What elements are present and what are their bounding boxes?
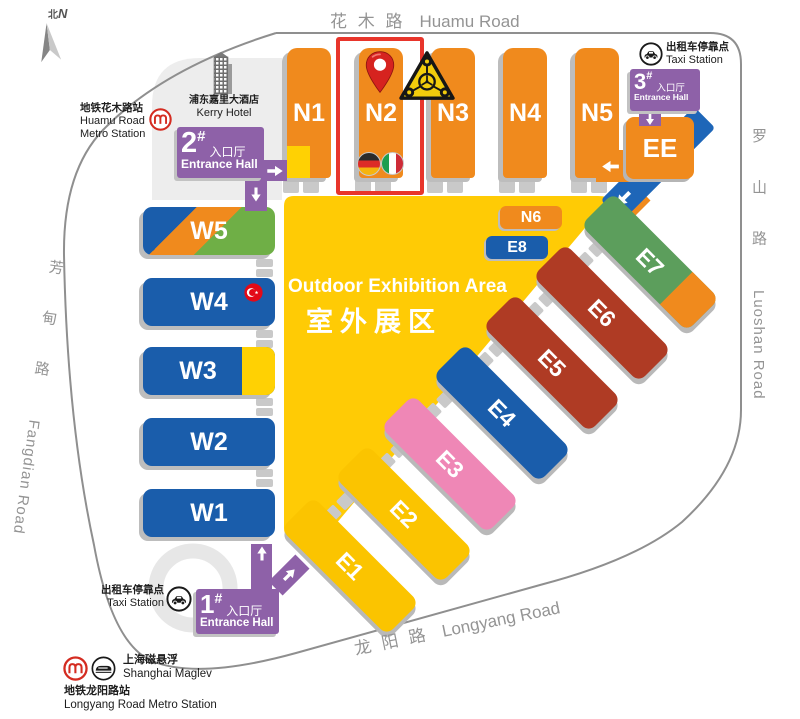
- triangle-brand-logo-icon: [398, 49, 456, 102]
- hall-w3-yellow-section: [242, 347, 275, 395]
- entrance-1-en: Entrance Hall: [200, 617, 275, 630]
- arrow-up-right-icon: [279, 565, 298, 584]
- compass-needle-icon: [31, 19, 66, 66]
- hall-w5-label: W5: [190, 217, 228, 246]
- hall-n4-label: N4: [509, 99, 541, 128]
- kerry-hotel-label: 浦东嘉里大酒店 Kerry Hotel: [176, 95, 272, 121]
- huamu-metro-en2: Metro Station: [80, 128, 145, 141]
- connector-stub: [499, 179, 515, 193]
- hall-w4-label: W4: [190, 288, 228, 317]
- entrance-2-down-stub: [245, 177, 267, 211]
- connector-stub: [256, 269, 273, 277]
- expo-map-canvas: 花 木 路 Huamu Road 北N 芳 甸 路 Fangdian Road …: [0, 0, 800, 719]
- shanghai-maglev-label: 上海磁悬浮 Shanghai Maglev: [123, 654, 212, 681]
- hall-w1: W1: [143, 489, 275, 537]
- hall-n1: N1: [287, 48, 331, 178]
- connector-stub: [256, 469, 273, 477]
- connector-stub: [256, 398, 273, 406]
- huamu-metro-zh: 地铁花木路站: [80, 102, 145, 115]
- entrance-2-en: Entrance Hall: [181, 158, 260, 171]
- entrance-1-up-stub: [251, 544, 272, 590]
- taxi-south-en: Taxi Station: [96, 597, 164, 610]
- hall-e8: E8: [486, 236, 548, 259]
- outdoor-area-title-en: Outdoor Exhibition Area: [288, 276, 507, 298]
- hotel-icon: [208, 50, 236, 96]
- entrance-1-box: 1 # 入口厅 Entrance Hall: [196, 589, 279, 634]
- hall-w5: W5: [143, 207, 275, 255]
- taxi-icon-south: [166, 586, 192, 612]
- entrance-2-number: 2: [181, 129, 197, 158]
- outdoor-area-title-zh: 室外展区: [306, 300, 442, 339]
- entrance-3-box: 3 # 入口厅 Entrance Hall: [630, 69, 700, 111]
- luoshan-road-zh: 罗 山 路: [750, 128, 767, 261]
- outdoor-title-zh-text: 室外展区: [306, 307, 442, 337]
- luoshan-road-label: 罗 山 路 Luoshan Road: [748, 128, 769, 428]
- hall-w2: W2: [143, 418, 275, 466]
- longyang-metro-en: Longyang Road Metro Station: [64, 698, 217, 712]
- kerry-hotel-zh: 浦东嘉里大酒店: [176, 95, 272, 107]
- connector-stub: [256, 330, 273, 338]
- hall-n1-label: N1: [293, 99, 325, 128]
- hall-w3-label: W3: [179, 357, 217, 386]
- arrow-up-icon: [256, 547, 267, 561]
- connector-stub: [256, 408, 273, 416]
- entrance-1-hash: #: [214, 591, 222, 605]
- maglev-train-icon: [91, 656, 116, 681]
- turkey-flag-icon: [244, 283, 263, 302]
- hall-e6-label: E6: [582, 293, 621, 332]
- hall-w2-label: W2: [190, 428, 228, 457]
- taxi-station-south-label: 出租车停靠点 Taxi Station: [96, 584, 164, 610]
- maglev-zh: 上海磁悬浮: [123, 654, 212, 667]
- huamu-metro-en1: Huamu Road: [80, 115, 145, 128]
- entrance-1-number: 1: [200, 591, 214, 617]
- taxi-station-north-label: 出租车停靠点 Taxi Station: [666, 41, 729, 67]
- hall-n6-label: N6: [521, 209, 541, 227]
- arrow-down-icon: [251, 187, 262, 201]
- arrow-left-icon: [602, 160, 619, 173]
- hall-ee-label: EE: [643, 133, 678, 164]
- luoshan-road-en: Luoshan Road: [750, 290, 767, 400]
- longyang-metro-station-label: 地铁龙阳路站 Longyang Road Metro Station: [64, 685, 217, 712]
- taxi-north-en: Taxi Station: [666, 54, 729, 67]
- hall-e2-label: E2: [384, 494, 423, 533]
- hall-e3-label: E3: [430, 444, 469, 483]
- connector-stub: [283, 179, 299, 193]
- outdoor-title-en-text: Outdoor Exhibition Area: [288, 276, 507, 297]
- metro-logo-icon: [149, 108, 172, 131]
- taxi-north-zh: 出租车停靠点: [666, 41, 729, 54]
- huamu-road-label: 花 木 路 Huamu Road: [330, 7, 520, 32]
- entrance-3-en: Entrance Hall: [634, 93, 696, 102]
- metro-logo-icon-south: [63, 656, 88, 681]
- entrance-1-zh: 入口厅: [226, 605, 262, 617]
- hall-w1-label: W1: [190, 499, 228, 528]
- connector-stub: [447, 179, 463, 193]
- hall-n4: N4: [503, 48, 547, 178]
- hall-n5-label: N5: [581, 99, 613, 128]
- compass: 北N: [34, 6, 67, 65]
- hall-e1-label: E1: [330, 546, 369, 585]
- hall-e7-label: E7: [630, 242, 669, 281]
- connector-stub: [303, 179, 319, 193]
- connector-stub: [427, 179, 443, 193]
- maglev-en: Shanghai Maglev: [123, 667, 212, 681]
- hall-n3-label: N3: [437, 99, 469, 128]
- entrance-3-hash: #: [646, 71, 652, 82]
- connector-stub: [256, 259, 273, 267]
- entrance-2-hash: #: [197, 129, 205, 144]
- connector-stub: [256, 479, 273, 487]
- hall-e4-label: E4: [482, 393, 521, 432]
- hall-n6: N6: [500, 206, 562, 229]
- huamu-metro-station-label: 地铁花木路站 Huamu Road Metro Station: [80, 102, 145, 142]
- hall-w4: W4: [143, 278, 275, 326]
- kerry-hotel-en: Kerry Hotel: [176, 107, 272, 120]
- entrance-3-arrow-tab: [639, 111, 661, 126]
- connector-stub: [571, 179, 587, 193]
- entrance-3-number: 3: [634, 71, 646, 93]
- longyang-metro-zh: 地铁龙阳路站: [64, 685, 217, 698]
- hall-w3: W3: [143, 347, 275, 395]
- arrow-right-icon: [267, 165, 283, 177]
- arrow-down-icon: [645, 113, 655, 125]
- hall-ee: EE: [626, 117, 694, 179]
- huamu-road-zh: 花 木 路: [330, 7, 405, 32]
- hall-n1-yellow-section: [287, 146, 310, 178]
- taxi-south-zh: 出租车停靠点: [96, 584, 164, 597]
- entrance-2-box: 2 # 入口厅 Entrance Hall: [177, 127, 264, 178]
- connector-stub: [519, 179, 535, 193]
- huamu-road-en: Huamu Road: [419, 12, 519, 32]
- hall-e8-label: E8: [507, 239, 527, 257]
- taxi-icon-north: [639, 42, 663, 66]
- hall-e5-label: E5: [532, 343, 571, 382]
